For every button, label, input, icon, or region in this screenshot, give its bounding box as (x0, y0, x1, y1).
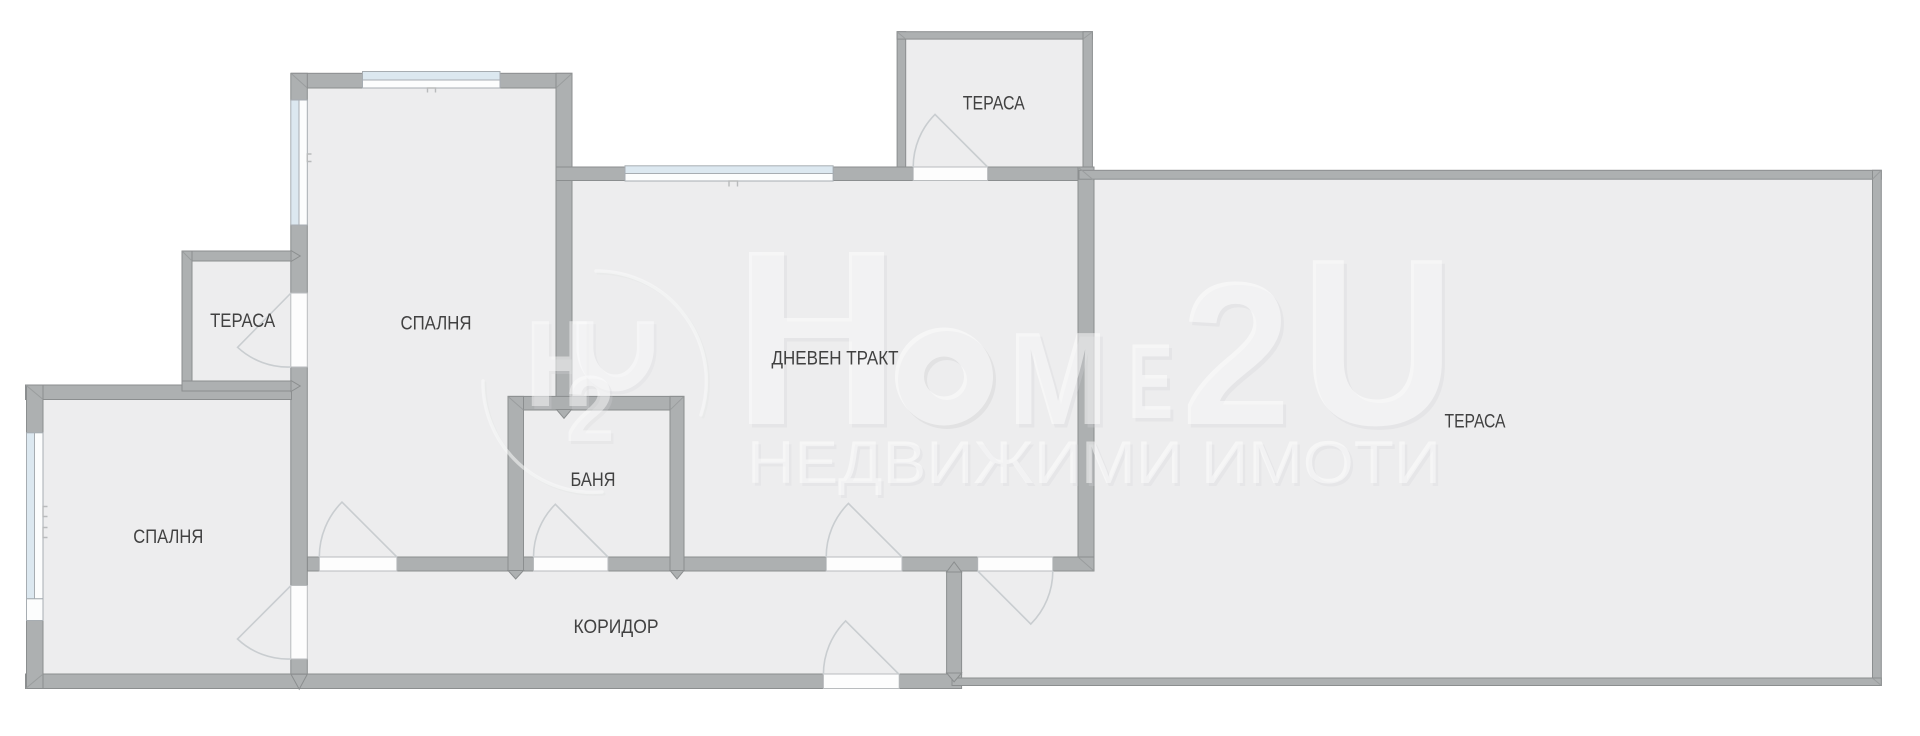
svg-text:ТЕРАСА: ТЕРАСА (210, 311, 275, 332)
svg-text:ДНЕВЕН ТРАКТ: ДНЕВЕН ТРАКТ (772, 349, 899, 370)
svg-text:БАНЯ: БАНЯ (571, 470, 616, 491)
svg-text:КОРИДОР: КОРИДОР (574, 617, 659, 638)
svg-text:ТЕРАСА: ТЕРАСА (963, 94, 1025, 115)
svg-text:ТЕРАСА: ТЕРАСА (1445, 412, 1506, 433)
svg-text:СПАЛНЯ: СПАЛНЯ (133, 527, 203, 548)
svg-text:E: E (1128, 321, 1173, 441)
svg-text:СПАЛНЯ: СПАЛНЯ (401, 314, 472, 335)
svg-text:2: 2 (566, 356, 615, 461)
svg-text:НЕДВИЖИМИ ИМОТИ: НЕДВИЖИМИ ИМОТИ (747, 429, 1441, 496)
